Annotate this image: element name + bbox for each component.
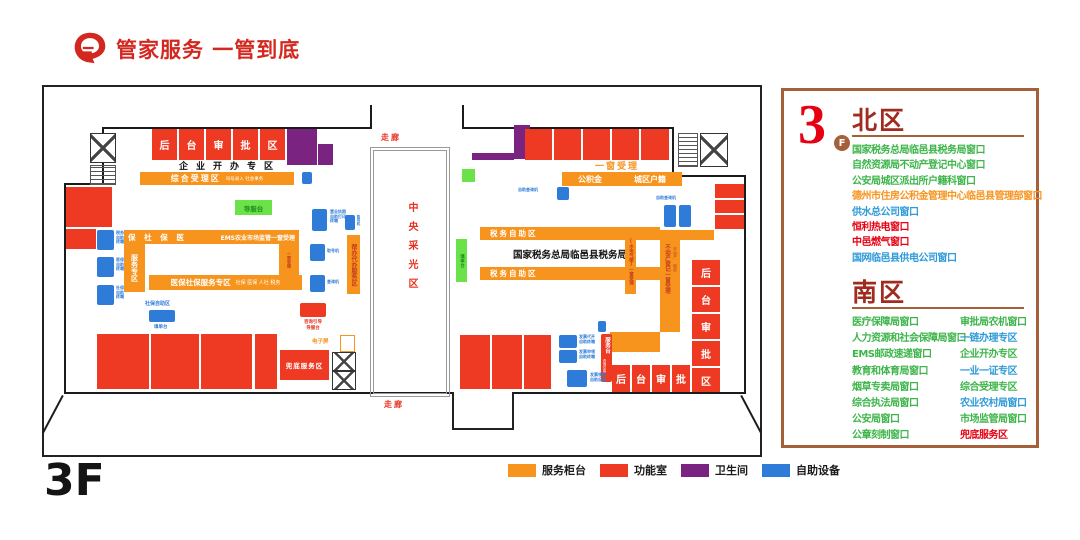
legend-item: 服务柜台	[508, 462, 586, 478]
kiosk-label: 自助设备	[590, 378, 606, 383]
wall	[370, 105, 372, 129]
elevator-icon	[332, 352, 356, 371]
room	[554, 129, 581, 160]
room-back-office: 后	[152, 129, 177, 160]
self-service-kiosk	[559, 350, 577, 363]
legend-item: 自助设备	[762, 462, 840, 478]
floor-badge: F	[834, 135, 850, 151]
legend-item: 卫生间	[681, 462, 748, 478]
wall	[672, 175, 746, 177]
med-counter-bottom: 医保社保服务专区	[171, 277, 231, 288]
service-desk-label: 服务台	[603, 337, 611, 354]
list-item: 恒利热电窗口	[852, 220, 1042, 235]
room	[524, 335, 551, 389]
form-desk-vertical: 填单台	[456, 239, 467, 282]
brand-logo-icon	[72, 30, 108, 66]
self-service-kiosk	[312, 209, 327, 231]
zone-list-panel: 3 F 北区 国家税务总局临邑县税务局窗口 自然资源局不动产登记中心窗口 公安局…	[781, 88, 1039, 448]
north-zone-list: 国家税务总局临邑县税务局窗口 自然资源局不动产登记中心窗口 公安局城区派出所户籍…	[852, 143, 1042, 266]
kiosk-label: 取号机	[327, 249, 339, 254]
med-counter-top-right: EMS农业市场监管一窗受理	[221, 233, 295, 242]
realestate-counter-sublabel: 不动产 税务	[672, 247, 678, 272]
room	[612, 129, 639, 160]
legend-swatch-function-room	[600, 464, 628, 477]
stairs-icon	[678, 133, 698, 167]
acceptance-bar-sublabel: 叫号录入 社会事务	[226, 176, 263, 182]
legend-swatch-self-service	[762, 464, 790, 477]
legend-label: 功能室	[634, 462, 667, 478]
kiosk-label: 终端	[116, 240, 124, 245]
list-item: 国网临邑县供电公司窗口	[852, 251, 1042, 266]
legend-label: 自助设备	[796, 462, 840, 478]
list-item: 医疗保障局窗口	[852, 315, 966, 331]
corridor-label-bottom: 走廊	[384, 399, 404, 410]
utility-counter: [水电气暖]一窗受理	[625, 230, 636, 294]
elevator-icon	[332, 371, 356, 390]
list-item: 教育和体育局窗口	[852, 364, 966, 380]
self-service-kiosk	[557, 187, 569, 200]
self-service-kiosk	[310, 244, 325, 261]
legend-swatch-service-counter	[508, 464, 536, 477]
room-back-office: 台	[179, 129, 204, 160]
room-back-office: 台	[632, 365, 650, 392]
elevator-icon	[90, 133, 116, 163]
stairs-icon	[90, 165, 116, 185]
kiosk-label: 自助查询机	[518, 188, 538, 193]
divider	[852, 307, 1024, 309]
form-desk-kiosk	[149, 310, 175, 322]
guide-desk: 导服台	[235, 200, 272, 215]
atrium-label: 中央采光区	[404, 202, 419, 297]
room	[201, 334, 252, 389]
list-item: 一业一证专区	[960, 364, 1027, 380]
list-item: 自然资源局不动产登记中心窗口	[852, 158, 1042, 173]
list-item: 一链办理专区	[960, 331, 1027, 347]
room-back-office: 区	[692, 368, 720, 392]
zone-label-enterprise: 企业开办专区	[150, 159, 310, 172]
exit-vestibule	[452, 392, 514, 430]
room	[641, 129, 669, 160]
wall	[672, 127, 674, 177]
south-zone-list-col2: 审批局农机窗口 一链办理专区 企业开办专区 一业一证专区 综合受理专区 农业农村…	[960, 315, 1027, 445]
divider	[852, 135, 1024, 137]
list-item: EMS邮政速递窗口	[852, 347, 966, 363]
green-desk	[462, 169, 475, 182]
list-item: 烟草专卖局窗口	[852, 380, 966, 396]
north-zone-heading: 北区	[852, 101, 906, 137]
list-item: 市场监管局窗口	[960, 412, 1027, 428]
room-back-office: 审	[652, 365, 670, 392]
list-item: 国家税务总局临邑县税务局窗口	[852, 143, 1042, 158]
floorplan-frame: 电梯 后 台 审 批 区 企业开办专区 综合受理区 叫号录入 社会事务 导服台 …	[42, 85, 762, 457]
self-service-kiosk	[567, 370, 587, 387]
floorplan-poster: { "title": "管家服务 一管到底", "floor_big_label…	[0, 0, 1080, 540]
self-service-kiosk	[559, 335, 577, 348]
sb-zone-label: 社保自助区	[145, 302, 170, 308]
room	[715, 184, 744, 198]
room	[583, 129, 610, 160]
kiosk-label: 查询机	[327, 280, 339, 285]
south-zone-list-col1: 医疗保障局窗口 人力资源和社会保障局窗口 EMS邮政速递窗口 教育和体育局窗口 …	[852, 315, 966, 445]
kiosk-label: 自助查询机	[656, 196, 676, 201]
room	[460, 335, 490, 389]
corridor-label-top: 走廊	[381, 132, 401, 143]
floor-big-label: 3F	[44, 455, 105, 506]
kiosk-label: 自助终端	[579, 340, 595, 345]
room	[492, 335, 522, 389]
elevator-icon	[700, 133, 728, 167]
list-item: 综合执法局窗口	[852, 396, 966, 412]
self-service-kiosk	[345, 215, 355, 230]
self-service-kiosk	[97, 285, 114, 305]
legend-swatch-toilet	[681, 464, 709, 477]
room	[715, 215, 744, 229]
kiosk-label: 终端	[116, 267, 124, 272]
room	[525, 129, 552, 160]
wall-diagonal	[740, 395, 761, 433]
doudi-service-room: 兜底服务区	[280, 350, 329, 380]
room-back-office: 批	[692, 341, 720, 366]
south-zone-heading: 南区	[852, 273, 906, 309]
room-back-office: 后	[612, 365, 630, 392]
electronic-screen	[340, 335, 355, 352]
list-item: 公章刻制窗口	[852, 428, 966, 444]
gjj-counter-label: 公积金	[578, 174, 602, 185]
kiosk-label: 终端	[116, 295, 124, 300]
kiosk-label: 终端	[330, 219, 346, 224]
legend-label: 服务柜台	[542, 462, 586, 478]
self-service-kiosk	[664, 205, 676, 227]
med-counter-top-left: 保 社 保 医	[128, 232, 187, 243]
med-counter-right: 一窗受理	[279, 244, 299, 275]
room-back-office: 区	[260, 129, 285, 160]
room	[97, 334, 149, 389]
bangban-counter: 帮办代办服务区	[347, 235, 360, 294]
consult-desk	[300, 303, 326, 317]
med-counter-bottom-sub: 社保 医保 人社 税务	[236, 279, 281, 286]
legend-item: 功能室	[600, 462, 667, 478]
list-item: 公安局窗口	[852, 412, 966, 428]
wall	[744, 175, 746, 394]
room-back-office: 审	[692, 314, 720, 339]
consult-desk-label: 导服台	[288, 326, 338, 332]
list-item: 中邑燃气窗口	[852, 235, 1042, 250]
med-counter-left: 服务专区	[124, 244, 145, 292]
screen-label: 电子屏	[312, 337, 329, 345]
room-back-office: 批	[233, 129, 258, 160]
self-service-kiosk	[310, 275, 325, 292]
list-item: 农业农村局窗口	[960, 396, 1027, 412]
list-item: 审批局农机窗口	[960, 315, 1027, 331]
room	[255, 334, 277, 389]
list-item: 企业开办专区	[960, 347, 1027, 363]
room	[66, 229, 96, 249]
kiosk-label: 取号机	[357, 215, 361, 226]
realestate-counter-label: 不动产登记一窗受理	[663, 244, 671, 294]
acceptance-bar-label: 综合受理区	[171, 173, 221, 184]
list-item: 公安局城区派出所户籍科窗口	[852, 174, 1042, 189]
self-service-kiosk	[598, 321, 606, 332]
toilet-block	[318, 144, 333, 165]
wall	[512, 392, 746, 394]
wall	[462, 105, 464, 129]
list-item: 人力资源和社会保障局窗口	[852, 331, 966, 347]
self-service-kiosk	[97, 257, 114, 277]
service-desk-sublabel: 咨询引导	[603, 359, 608, 373]
hukou-counter-label: 城区户籍	[634, 174, 666, 185]
room	[715, 200, 744, 213]
form-desk-label: 填单台	[154, 325, 168, 330]
list-item: 供水总公司窗口	[852, 205, 1042, 220]
wall-diagonal	[42, 395, 63, 433]
room-back-office: 批	[672, 365, 690, 392]
room-back-office: 后	[692, 260, 720, 285]
kiosk-label: 自助终端	[579, 355, 595, 360]
room	[66, 187, 112, 227]
legend-label: 卫生间	[715, 462, 748, 478]
legend: 服务柜台 功能室 卫生间 自助设备	[508, 462, 840, 478]
realestate-counter-top	[660, 230, 714, 240]
self-service-kiosk	[97, 230, 114, 250]
self-service-kiosk	[679, 205, 691, 227]
room-back-office: 审	[206, 129, 231, 160]
list-item: 兜底服务区	[960, 428, 1027, 444]
realestate-counter-bottom	[610, 332, 660, 352]
page-title: 管家服务 一管到底	[116, 34, 300, 64]
room-back-office: 台	[692, 287, 720, 312]
list-item: 德州市住房公积金管理中心临邑县管理部窗口	[852, 189, 1042, 204]
one-window-label: 一窗受理	[595, 159, 639, 172]
floor-number: 3	[798, 93, 826, 157]
toilet-block	[472, 153, 514, 160]
list-item: 综合受理专区	[960, 380, 1027, 396]
self-service-kiosk	[302, 172, 312, 184]
room	[151, 334, 199, 389]
